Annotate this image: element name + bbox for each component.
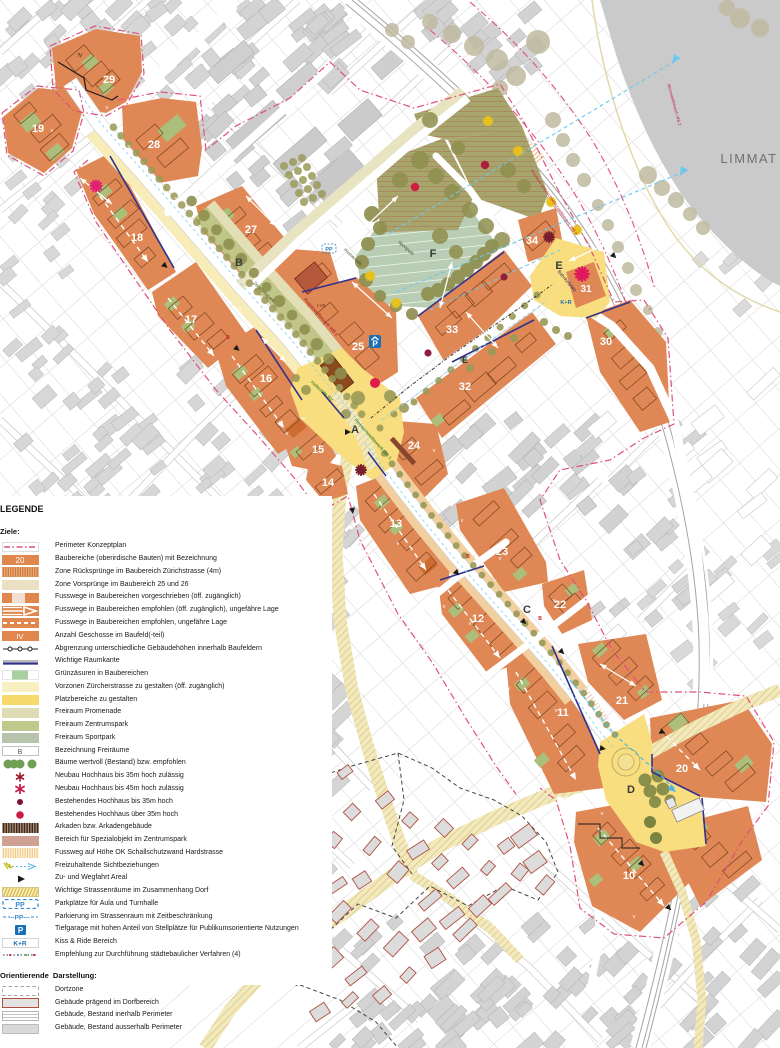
svg-text:VII: VII (300, 416, 306, 421)
svg-text:20: 20 (676, 763, 688, 775)
svg-text:17: 17 (185, 314, 197, 326)
svg-text:E: E (462, 355, 468, 365)
svg-text:B: B (466, 554, 470, 560)
svg-text:IV: IV (78, 53, 83, 59)
svg-text:v: v (286, 431, 289, 437)
svg-text:P: P (18, 926, 24, 935)
svg-text:27: 27 (245, 224, 257, 236)
svg-text:B: B (226, 335, 230, 341)
svg-text:21: 21 (616, 695, 628, 707)
svg-text:10: 10 (623, 870, 635, 882)
svg-text:33: 33 (446, 324, 458, 336)
svg-text:28: 28 (148, 139, 160, 151)
svg-text:IV: IV (16, 632, 23, 641)
svg-text:25: 25 (352, 341, 364, 353)
svg-text:v: v (397, 541, 400, 547)
svg-text:v: v (128, 144, 131, 150)
svg-text:v: v (555, 708, 558, 714)
svg-text:16: 16 (260, 373, 272, 385)
svg-text:v: v (469, 621, 472, 627)
svg-text:v: v (175, 196, 178, 202)
svg-text:PP: PP (15, 902, 25, 909)
svg-text:B: B (538, 616, 542, 622)
svg-text:11: 11 (557, 707, 569, 719)
svg-text:v: v (239, 306, 242, 312)
svg-text:v: v (433, 448, 436, 454)
svg-text:24: 24 (408, 440, 421, 452)
svg-text:I-VII: I-VII (317, 303, 325, 308)
svg-text:22: 22 (554, 599, 566, 611)
svg-text:v: v (461, 518, 464, 524)
svg-text:20: 20 (16, 556, 25, 565)
svg-text:31: 31 (580, 284, 592, 295)
svg-text:v: v (633, 914, 636, 920)
svg-text:B: B (235, 257, 243, 269)
svg-text:v: v (601, 811, 604, 817)
svg-text:32: 32 (459, 381, 471, 393)
svg-text:P: P (372, 340, 378, 349)
svg-text:30: 30 (600, 336, 612, 348)
svg-text:K+R: K+R (13, 940, 26, 947)
svg-text:15: 15 (312, 444, 324, 456)
svg-text:PP: PP (325, 247, 333, 253)
svg-text:v: v (553, 598, 556, 604)
svg-text:v: v (443, 604, 446, 610)
svg-text:K+R: K+R (560, 300, 571, 306)
svg-text:v: v (499, 556, 502, 562)
svg-text:F: F (430, 248, 437, 260)
svg-text:A: A (351, 424, 359, 436)
svg-text:--PP---: --PP--- (10, 915, 30, 922)
svg-text:12: 12 (472, 613, 484, 625)
svg-text:v: v (601, 468, 604, 474)
svg-text:19: 19 (32, 123, 44, 135)
svg-text:v: v (213, 261, 216, 267)
svg-text:18: 18 (131, 232, 143, 244)
svg-text:D: D (627, 784, 635, 796)
svg-text:v: v (508, 686, 511, 692)
svg-text:14: 14 (322, 477, 335, 489)
svg-text:v: v (106, 105, 109, 111)
svg-text:29: 29 (103, 74, 115, 86)
svg-text:LIMMAT: LIMMAT (720, 151, 777, 166)
svg-text:v: v (51, 128, 54, 134)
svg-text:B: B (18, 749, 23, 756)
svg-text:C: C (523, 604, 531, 616)
